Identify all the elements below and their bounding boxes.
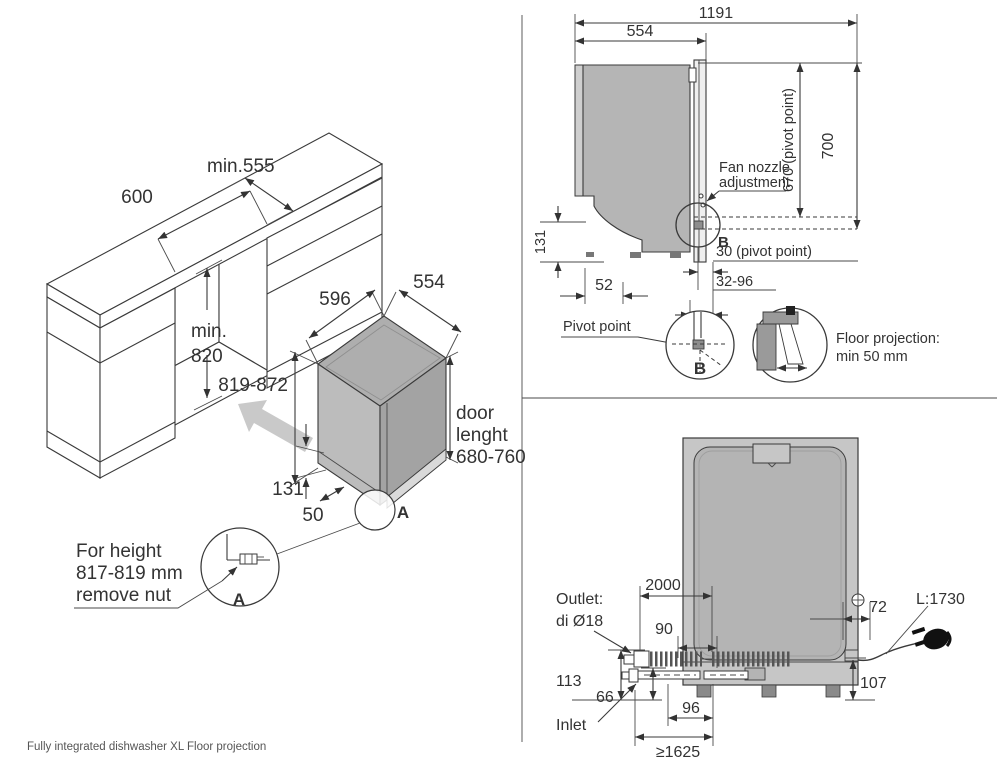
rear-inner-panel	[694, 447, 846, 660]
niche-depth-label: min.555	[207, 156, 275, 177]
left-cabinet-side	[47, 297, 100, 478]
side-pivot-height-label: 670 (pivot point)	[781, 88, 797, 192]
niche-width-label: 600	[121, 187, 153, 208]
toe-range-label: 32-96	[716, 274, 753, 290]
dw-plinth-height-label: 131	[272, 479, 304, 500]
door-length-label-1: door	[456, 403, 495, 424]
detail-a-marker: A	[233, 590, 245, 609]
rear-view: L:1730 2000 90 72 107	[556, 438, 965, 761]
drain-hose-length-label: 2000	[645, 577, 681, 594]
side-back-panel	[575, 65, 583, 196]
rear-top-notch	[753, 444, 790, 463]
fan-nozzle-line1: Fan nozzle	[719, 160, 790, 176]
pivot-point-label: Pivot point	[563, 319, 631, 335]
side-body	[583, 65, 690, 252]
pivot-point-block	[694, 221, 703, 229]
outlet-height-label: 113	[556, 673, 582, 690]
cord-offset-label: 72	[869, 599, 887, 616]
hose-reach-label: ≥1625	[656, 744, 700, 761]
side-top-bracket	[689, 68, 696, 82]
dim-door-length: door lenght 680-760	[446, 352, 526, 468]
niche-height-label-1: min.	[191, 321, 227, 342]
insertion-arrow	[238, 400, 313, 452]
rear-foot-left	[697, 685, 711, 697]
side-foot-front	[670, 252, 681, 258]
iso-niche-view: 600 min.555 min. 820	[47, 133, 526, 609]
fan-nozzle-line2: adjustment	[719, 175, 790, 191]
side-foot-rear	[586, 252, 594, 257]
footer-caption: Fully integrated dishwasher XL Floor pro…	[27, 741, 266, 753]
rear-foot-mid	[762, 685, 776, 697]
door-length-label-2: lenght	[456, 425, 508, 446]
cord-length-label: L:1730	[916, 591, 965, 608]
dim-dw-plinth-inset: 50	[302, 487, 344, 526]
dw-width-label: 596	[319, 289, 351, 310]
dw-depth-label: 554	[413, 272, 445, 293]
pivot-detail: Pivot point B	[561, 311, 734, 379]
side-foot-mid	[630, 252, 641, 258]
floor-projection-detail: Floor projection: min 50 mm	[753, 306, 940, 382]
side-body-depth-label: 554	[627, 23, 654, 40]
fan-nozzle-hole-1	[699, 194, 703, 198]
dim-side-plinth: 131	[533, 206, 604, 278]
dim-hose-reach: ≥1625	[635, 690, 713, 761]
inlet-label: Inlet	[556, 717, 587, 734]
side-total-depth-label: 1191	[699, 5, 734, 22]
detail-a: A For height 817-819 mm remove nut	[74, 528, 279, 609]
side-rear-offset-label: 52	[595, 277, 613, 294]
detail-circles: Pivot point B Floor projection: min 50 m…	[561, 306, 940, 382]
installation-drawing-page: 600 min.555 min. 820	[0, 0, 1000, 762]
dw-plinth-inset-label: 50	[302, 505, 323, 526]
floor-projection-label-1: Floor projection:	[836, 331, 940, 347]
corner-marker-a-label: A	[397, 503, 409, 522]
outlet-label-2: di Ø18	[556, 613, 603, 630]
inlet-height-label: 66	[596, 689, 614, 706]
niche-height-label-2: 820	[191, 346, 223, 367]
inlet-offset-label: 96	[682, 700, 700, 717]
detail-a-note-2: 817-819 mm	[76, 563, 183, 584]
dim-pivot-offset: 30 (pivot point)	[683, 244, 858, 322]
side-door-panel	[694, 60, 706, 262]
side-plinth-label: 131	[533, 230, 549, 254]
door-length-label-3: 680-760	[456, 447, 526, 468]
floor-projection-label-2: min 50 mm	[836, 349, 908, 365]
rear-foot-right	[826, 685, 840, 697]
dim-side-rear-offset: 52	[560, 268, 648, 304]
dw-height-label: 819-872	[218, 375, 288, 396]
outlet-offset-label: 90	[655, 621, 673, 638]
side-door-top-label: 700	[820, 133, 837, 160]
detail-a-note-1: For height	[76, 541, 162, 562]
dishwasher-installation-diagram: 600 min.555 min. 820	[0, 0, 1000, 762]
cord-height-label: 107	[860, 675, 887, 692]
outlet-label-1: Outlet:	[556, 591, 603, 608]
plug-icon	[912, 625, 952, 652]
pivot-detail-marker: B	[694, 359, 706, 378]
pivot-offset-label: 30 (pivot point)	[716, 244, 812, 260]
side-view: 1191 554 Fan nozzle adjustment B	[533, 5, 862, 322]
fan-nozzle-label: Fan nozzle adjustment	[707, 160, 790, 201]
detail-a-note-3: remove nut	[76, 585, 172, 606]
corner-marker-a-circle	[355, 490, 395, 530]
